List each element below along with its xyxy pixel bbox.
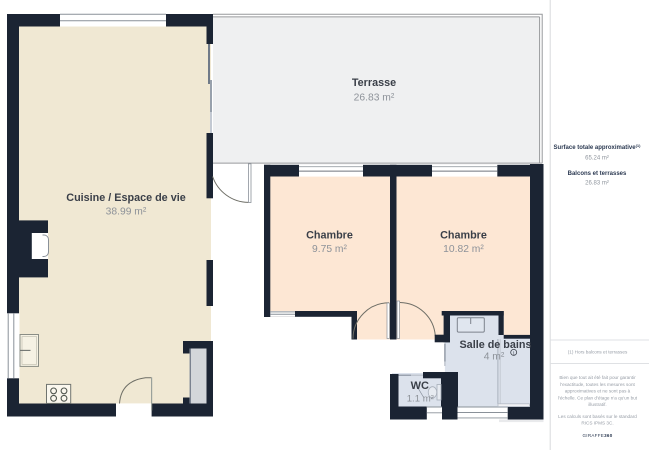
svg-text:26.83 m²: 26.83 m²: [585, 180, 609, 186]
svg-text:Balcons et terrasses: Balcons et terrasses: [568, 171, 627, 177]
svg-text:26.83 m²: 26.83 m²: [354, 92, 395, 103]
svg-text:RICS IPMS 3C.: RICS IPMS 3C.: [581, 421, 613, 426]
svg-text:GIRAFFE360: GIRAFFE360: [582, 433, 612, 438]
svg-text:1.1 m²: 1.1 m²: [407, 394, 435, 405]
svg-text:65.24 m²: 65.24 m²: [585, 156, 609, 162]
svg-text:Chambre: Chambre: [440, 230, 487, 242]
svg-text:Cuisine / Espace de vie: Cuisine / Espace de vie: [66, 192, 185, 204]
svg-text:(1) Hors balcons et terrasses: (1) Hors balcons et terrasses: [568, 350, 628, 355]
svg-text:4 m²: 4 m²: [484, 352, 505, 363]
svg-text:l'échelle. Ce plan d'étage n'a: l'échelle. Ce plan d'étage n'a qu'un but: [558, 395, 638, 400]
svg-text:Bien que tout ait été fait pou: Bien que tout ait été fait pour garantir: [559, 375, 636, 380]
svg-text:38.99 m²: 38.99 m²: [106, 206, 147, 217]
svg-text:Salle de bains: Salle de bains: [459, 339, 531, 351]
svg-text:9.75 m²: 9.75 m²: [312, 244, 347, 255]
svg-text:approximatives et ne sont pas: approximatives et ne sont pas à: [565, 389, 631, 394]
svg-text:Chambre: Chambre: [306, 230, 353, 242]
svg-text:illustratif.: illustratif.: [588, 402, 606, 407]
svg-text:Les calculs sont basés sur le: Les calculs sont basés sur le standard: [558, 414, 637, 419]
svg-text:10.82 m²: 10.82 m²: [443, 244, 484, 255]
svg-text:Terrasse: Terrasse: [352, 77, 396, 89]
svg-text:l'exactitude, toutes les mesur: l'exactitude, toutes les mesures sont: [560, 382, 635, 387]
svg-text:WC: WC: [411, 380, 429, 392]
svg-text:Surface totale approximative(1: Surface totale approximative(1): [554, 143, 642, 151]
